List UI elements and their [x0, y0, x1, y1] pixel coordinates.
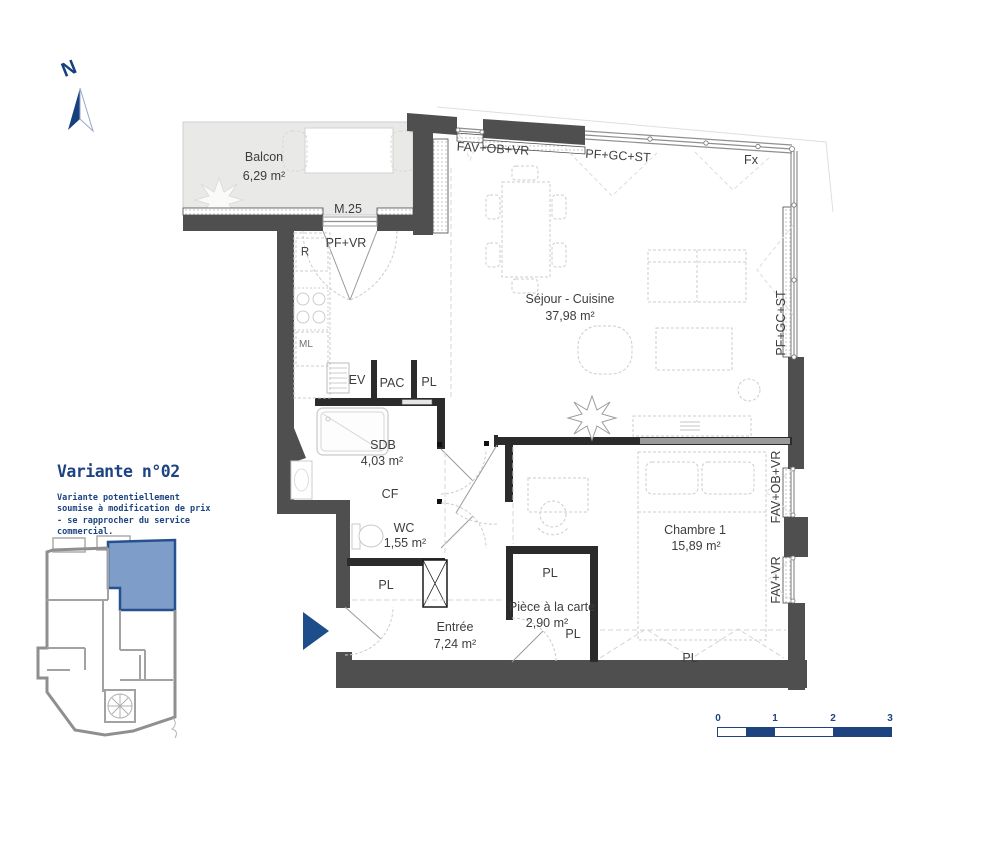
key-map-highlight: [108, 540, 175, 610]
chambre-wall-light-seg: [640, 438, 790, 444]
zone-boundaries: [352, 168, 786, 658]
room-label-wc: WC: [394, 522, 415, 535]
room-area-piece: 2,90 m²: [526, 617, 568, 630]
annotation-ev: EV: [349, 374, 366, 387]
room-label-entree: Entrée: [437, 621, 474, 634]
scale-bar-track: [717, 727, 892, 737]
scale-tick-2: 2: [830, 713, 836, 724]
annotation-pf-gc-st-right: PF+GC+ST: [775, 290, 788, 355]
scale-seg-white-2: [775, 728, 833, 736]
variant-title: Variante n°02: [57, 462, 180, 481]
annotation-pf-vr: PF+VR: [326, 237, 367, 250]
annotation-pl-piece-top: PL: [542, 567, 557, 580]
entrance-arrow-icon: [303, 612, 329, 650]
room-label-sdb: SDB: [370, 439, 396, 452]
room-label-balcon: Balcon: [245, 151, 283, 164]
room-label-piece: Pièce à la carte: [509, 601, 595, 614]
annotation-pl-wc: PL: [378, 579, 393, 592]
floor-plan-page: N Balcon 6,29 m² M.25 PF+VR R FAV+OB+VR …: [0, 0, 1000, 857]
scale-seg-white-1: [718, 728, 746, 736]
annotation-fav-ob-vr-right: FAV+OB+VR: [770, 451, 783, 524]
annotation-fx: Fx: [744, 154, 758, 167]
window-swing-marks: [459, 134, 793, 602]
annotation-pl-kitchen: PL: [421, 376, 436, 389]
room-area-entree: 7,24 m²: [434, 638, 476, 651]
annotation-pl-chambre: PL: [682, 652, 697, 665]
room-area-wc: 1,55 m²: [384, 537, 426, 550]
annotation-fav-vr-right: FAV+VR: [770, 556, 783, 603]
room-area-sejour: 37,98 m²: [545, 310, 594, 323]
annotation-cf: CF: [382, 488, 399, 501]
plant-icon: [568, 396, 616, 440]
sliding-door-sdb: [402, 400, 432, 405]
scale-tick-1: 1: [772, 713, 778, 724]
annotation-fridge: R: [301, 247, 309, 259]
key-map: [38, 536, 176, 738]
room-area-balcon: 6,29 m²: [243, 170, 285, 183]
room-label-sejour: Séjour - Cuisine: [526, 293, 615, 306]
variant-disclaimer: Variante potentiellement soumise à modif…: [57, 493, 215, 539]
annotation-m25: M.25: [334, 203, 362, 216]
scale-bar: 0 1 2 3: [717, 713, 892, 739]
scale-seg-navy-2: [833, 728, 891, 736]
scale-seg-navy-1: [746, 728, 775, 736]
room-area-sdb: 4,03 m²: [361, 455, 403, 468]
annotation-ml: ML: [299, 340, 313, 350]
room-area-chambre1: 15,89 m²: [671, 540, 720, 553]
scale-tick-0: 0: [715, 713, 721, 724]
key-map-stair: [108, 694, 132, 718]
room-label-chambre1: Chambre 1: [664, 524, 726, 537]
glazing-joints: [456, 128, 796, 603]
annotation-pac: PAC: [380, 377, 405, 390]
scale-tick-3: 3: [887, 713, 893, 724]
annotation-pl-piece-bottom: PL: [565, 628, 580, 641]
north-arrow-icon: [68, 88, 93, 131]
